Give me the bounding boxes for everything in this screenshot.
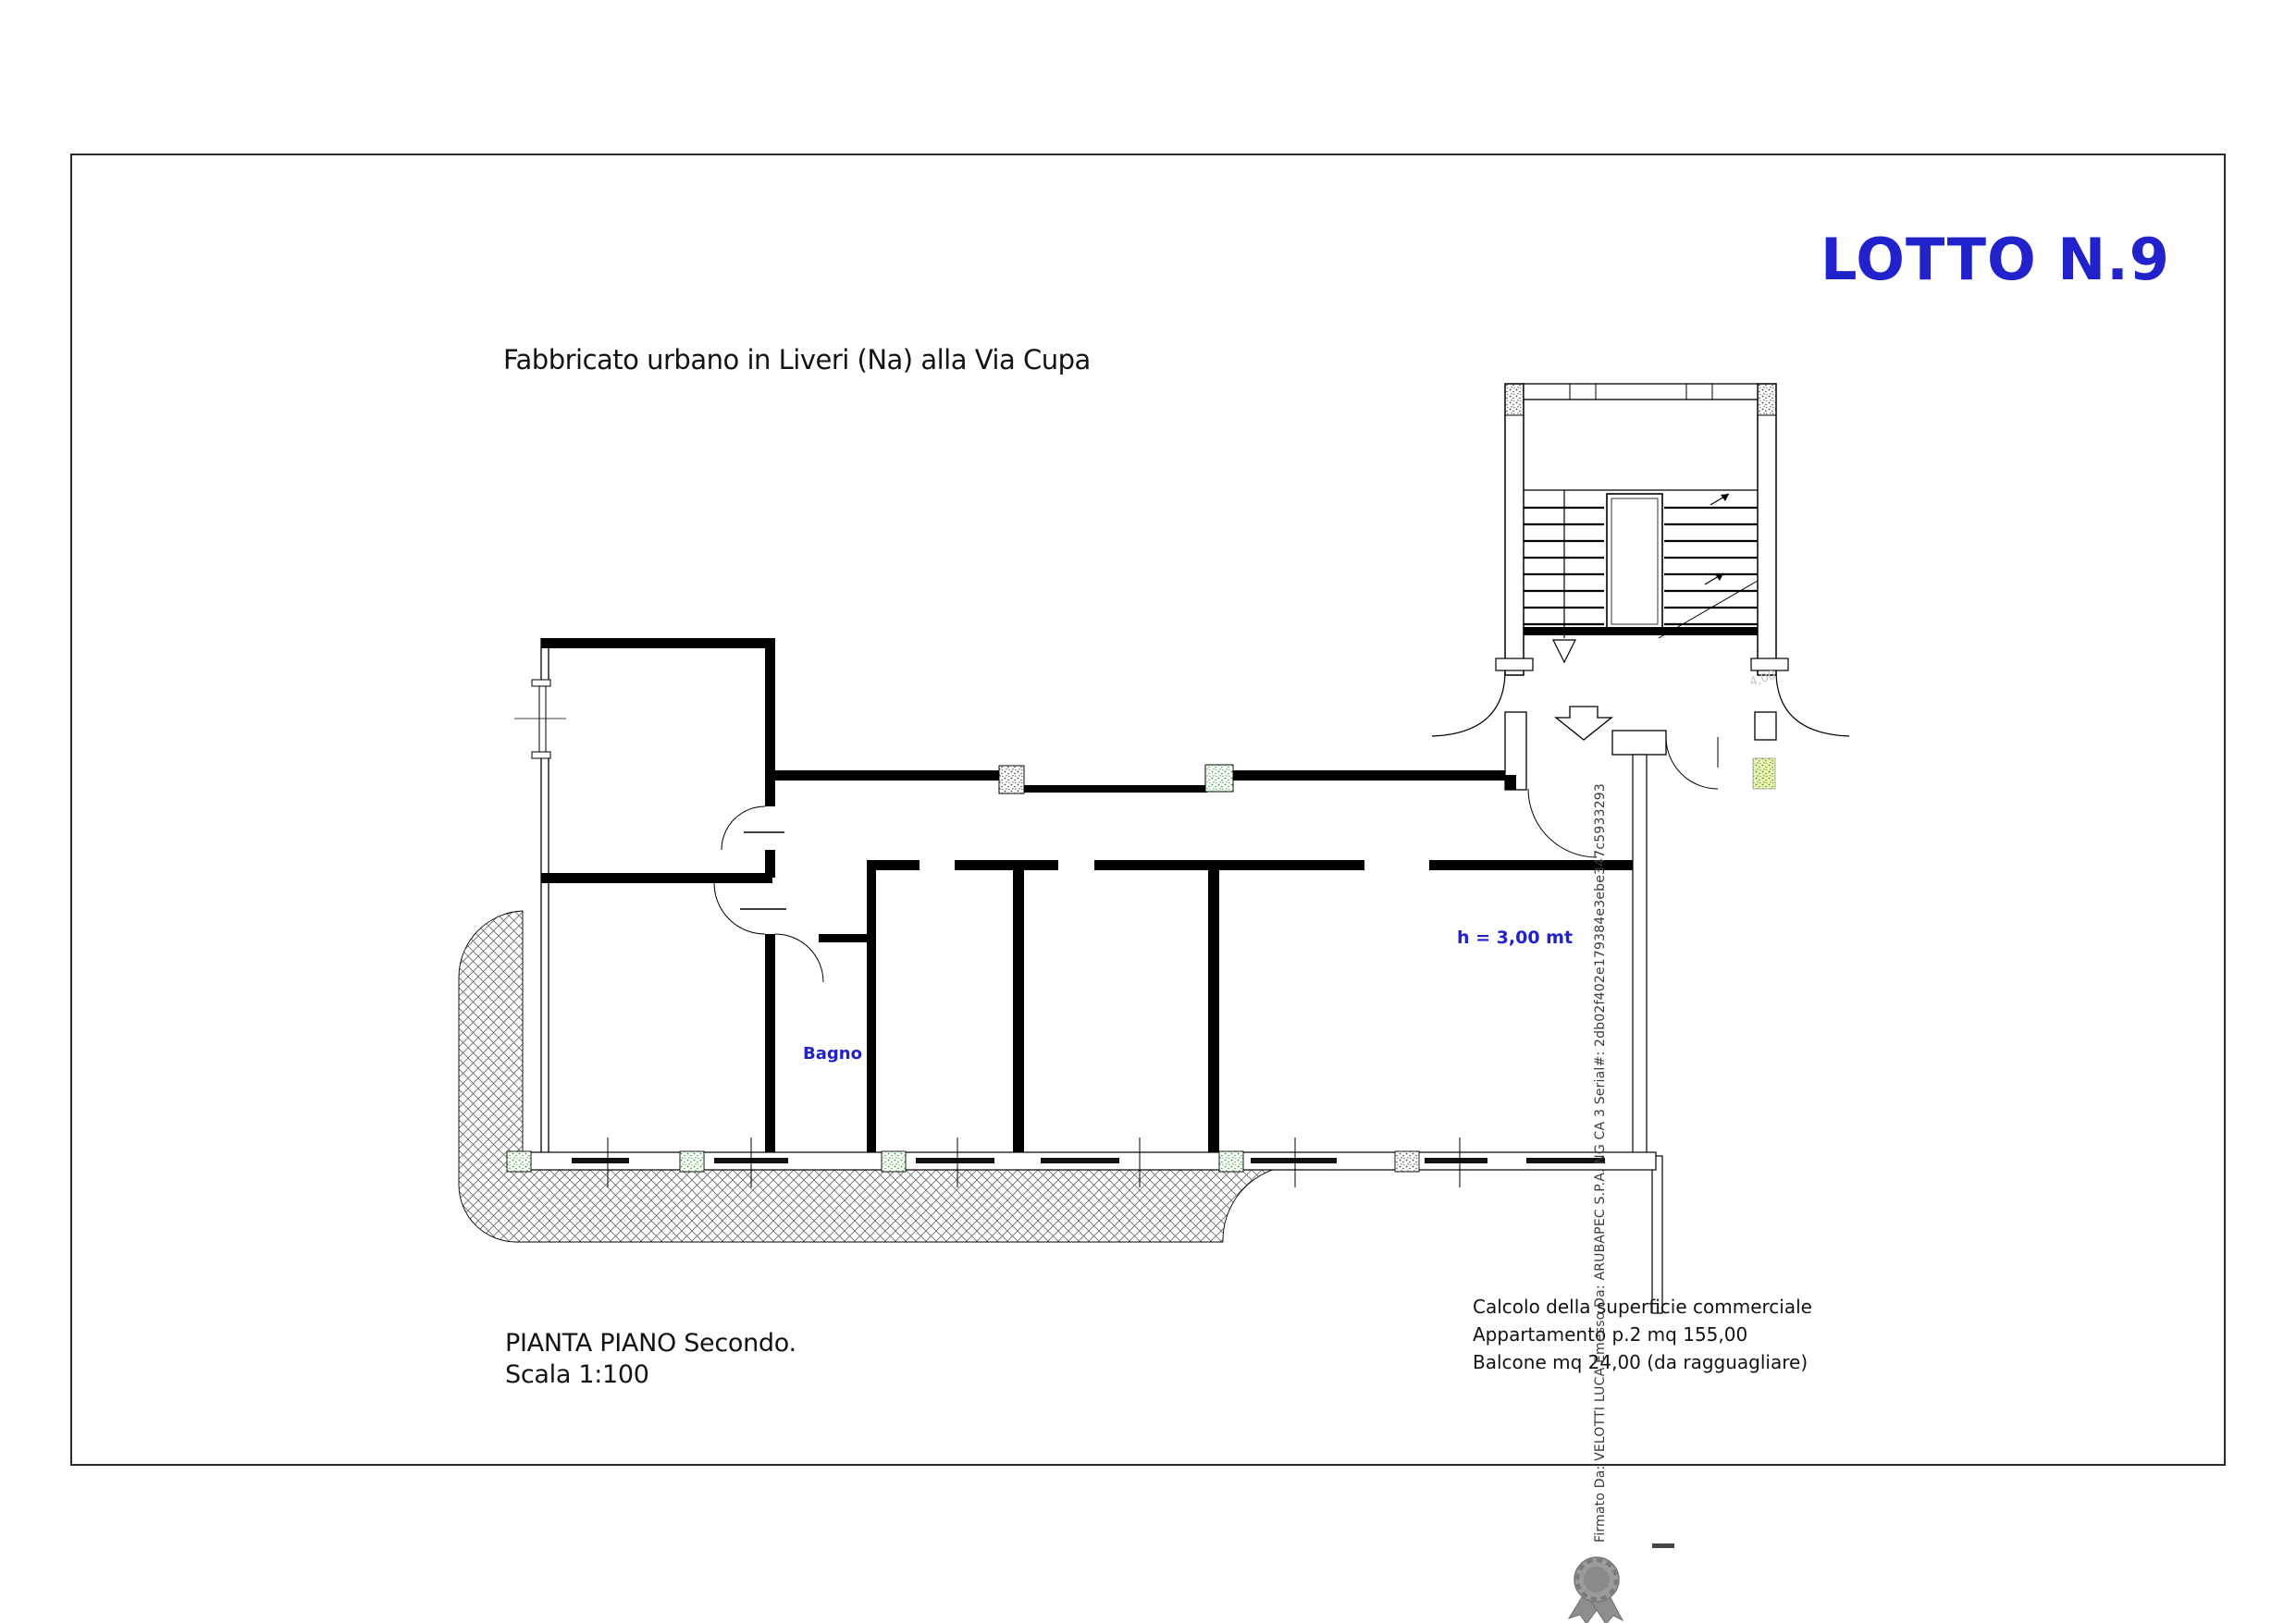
door-arc bbox=[722, 806, 765, 850]
signature-seal bbox=[1569, 1543, 1674, 1623]
room-height-label: h = 3,00 mt bbox=[1457, 928, 1573, 948]
stair-down-arrow-icon bbox=[1553, 640, 1575, 662]
hatched-pillar bbox=[999, 766, 1024, 793]
area-calc-line3: Balcone mq 24,00 (da ragguagliare) bbox=[1473, 1348, 1812, 1376]
green-pillar bbox=[1205, 765, 1233, 792]
door-arc bbox=[775, 934, 823, 982]
stairwell bbox=[1432, 384, 1849, 736]
area-calculation: Calcolo della superficie commerciale App… bbox=[1473, 1293, 1812, 1376]
elevator-shaft bbox=[1607, 494, 1662, 629]
lot-title: LOTTO N.9 bbox=[1821, 226, 2191, 293]
signature-text: Firmato Da: VELOTTI LUCA Emesso Da: ARUB… bbox=[1593, 783, 1608, 1543]
drawing-subtitle: Fabbricato urbano in Liveri (Na) alla Vi… bbox=[503, 344, 1091, 375]
dim-label: 4,00 bbox=[1748, 669, 1778, 690]
apartment-entrance-door-arc bbox=[1528, 789, 1597, 857]
room-label-bagno: Bagno bbox=[803, 1044, 862, 1064]
canopy-arc-right bbox=[1776, 670, 1849, 736]
plan-caption-line2: Scala 1:100 bbox=[505, 1359, 796, 1391]
plan-caption: PIANTA PIANO Secondo. Scala 1:100 bbox=[505, 1328, 796, 1391]
canopy-arc-left bbox=[1432, 670, 1505, 736]
window-bars bbox=[572, 1158, 1605, 1163]
plan-caption-line1: PIANTA PIANO Secondo. bbox=[505, 1328, 796, 1359]
entrance-arrow-icon bbox=[1556, 707, 1611, 740]
stair-treads-right bbox=[1664, 508, 1758, 624]
area-calc-line1: Calcolo della superficie commerciale bbox=[1473, 1293, 1812, 1321]
area-calc-line2: Appartamento p.2 mq 155,00 bbox=[1473, 1321, 1812, 1348]
signature-ribbon-icon bbox=[1569, 1557, 1623, 1623]
door-arc bbox=[1666, 737, 1718, 789]
